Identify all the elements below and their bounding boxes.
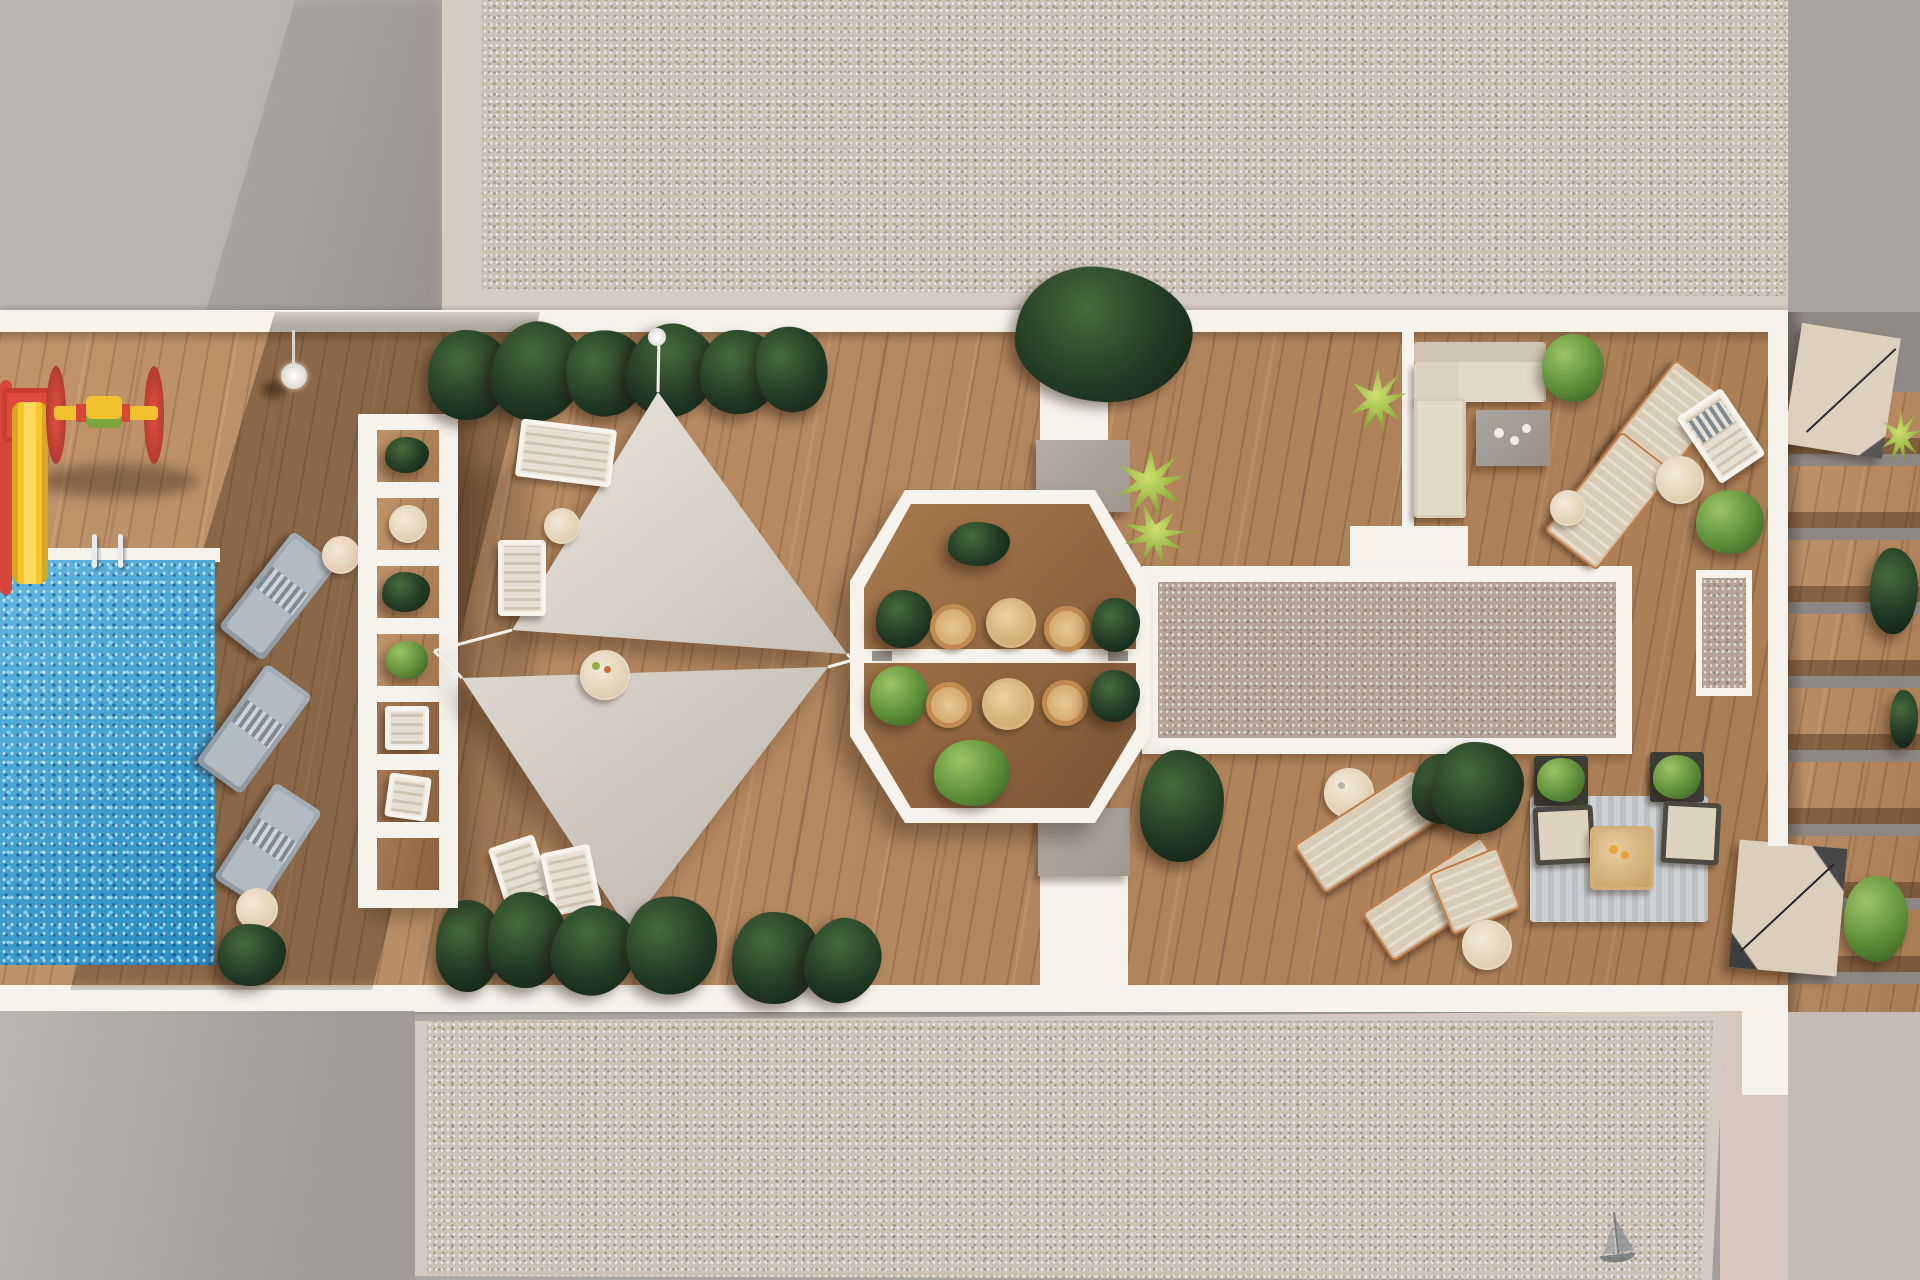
sofa-back xyxy=(1414,342,1546,364)
plant-right-strip-4 xyxy=(1844,876,1908,962)
lounger-in-pergola xyxy=(384,772,432,821)
stair-unit xyxy=(1729,840,1848,977)
planter-bush xyxy=(1537,758,1585,802)
plant-lounge xyxy=(1696,490,1764,554)
side-table xyxy=(1656,456,1704,504)
right-strip-paving xyxy=(1788,1012,1920,1280)
rug-lounge xyxy=(1524,744,1724,974)
planter-box xyxy=(1650,752,1704,802)
armchair xyxy=(1533,804,1596,865)
lounge-coffee-table xyxy=(1476,410,1550,466)
gazebo-bush xyxy=(934,740,1010,806)
shade-panel-tilted xyxy=(1783,323,1901,459)
sunbed-white xyxy=(498,540,546,616)
walkway-below-gazebo xyxy=(1040,872,1128,988)
plant-lounge xyxy=(1542,334,1604,402)
gravel-slab-top xyxy=(482,0,1798,296)
plate xyxy=(1510,436,1519,445)
rug-coffee-table xyxy=(1590,826,1654,890)
gazebo-chair xyxy=(926,682,972,728)
sail-anchor-light xyxy=(648,328,666,346)
tray-item xyxy=(592,662,600,670)
pergola-opening xyxy=(377,566,439,618)
planter-box xyxy=(1534,756,1588,806)
side-table xyxy=(1462,920,1512,970)
right-terrace-strip xyxy=(1788,0,1920,1280)
sailboat-sketch xyxy=(1593,1210,1647,1271)
pergola xyxy=(358,414,458,908)
tray-table xyxy=(580,650,630,700)
side-table xyxy=(322,536,360,574)
spinner xyxy=(40,362,220,482)
gravel-slab-bottom xyxy=(427,1021,1713,1280)
sofa-seat xyxy=(1414,362,1546,402)
armchair xyxy=(1660,801,1721,866)
pergola-opening xyxy=(377,702,439,754)
walkway-patch-bottom-right xyxy=(1742,1011,1790,1095)
gravel-slab-bottom-margin xyxy=(415,1011,1740,1280)
gray-box-above-gazebo xyxy=(1036,440,1130,512)
sunbed-white xyxy=(515,418,617,487)
side-table xyxy=(1550,490,1586,526)
stair-diagonal xyxy=(1740,864,1835,953)
side-table xyxy=(544,508,580,544)
divider-right-border xyxy=(1768,330,1788,846)
towel xyxy=(1688,401,1734,444)
pergola-opening xyxy=(377,498,439,550)
sail xyxy=(1600,1225,1615,1254)
plant-in-pergola xyxy=(385,437,429,473)
gravel-court xyxy=(1158,582,1616,738)
small-gravel-frame xyxy=(1696,570,1752,696)
pergola-opening xyxy=(377,770,439,822)
hull xyxy=(1600,1252,1637,1264)
fruit-bowl xyxy=(1609,845,1618,854)
building-shadow-on-concrete xyxy=(0,0,442,314)
pergola-opening xyxy=(377,430,439,482)
gravel-court-frame xyxy=(1142,566,1632,754)
gazebo-chair xyxy=(1044,606,1090,652)
axle-joint xyxy=(76,404,86,422)
fruit-bowl xyxy=(1621,851,1629,859)
pergola-opening xyxy=(377,634,439,686)
pergola-opening xyxy=(377,838,439,890)
table-in-pergola xyxy=(389,505,427,543)
plant-in-pergola xyxy=(382,572,430,612)
gray-box-below-gazebo xyxy=(1038,808,1130,876)
terrace-lamp xyxy=(281,363,307,389)
tray-item xyxy=(604,666,611,673)
lounger-in-pergola xyxy=(385,706,429,750)
plant-in-pergola xyxy=(386,641,428,679)
gazebo-table xyxy=(986,598,1036,648)
swimming-pool xyxy=(0,560,215,965)
rooftop-render xyxy=(0,0,1920,1280)
small-gravel-patch xyxy=(1702,578,1746,688)
concrete-corner-bottom-left xyxy=(0,1011,415,1280)
antenna-rod xyxy=(1806,348,1897,433)
concrete-corner-top-left xyxy=(0,0,442,314)
plate xyxy=(1494,428,1504,438)
gravel-slab-top-margin xyxy=(442,0,1807,316)
gazebo-bush xyxy=(870,666,928,726)
sofa-chaise xyxy=(1414,398,1466,518)
spinner-drum xyxy=(86,396,122,428)
plate xyxy=(1522,424,1531,433)
terrace-top-edge xyxy=(0,310,1788,332)
planter-bush xyxy=(1653,755,1701,799)
gazebo-chair xyxy=(1042,680,1088,726)
tray-item xyxy=(1338,782,1345,789)
gazebo-table xyxy=(982,678,1034,730)
gazebo-chair xyxy=(930,604,976,650)
